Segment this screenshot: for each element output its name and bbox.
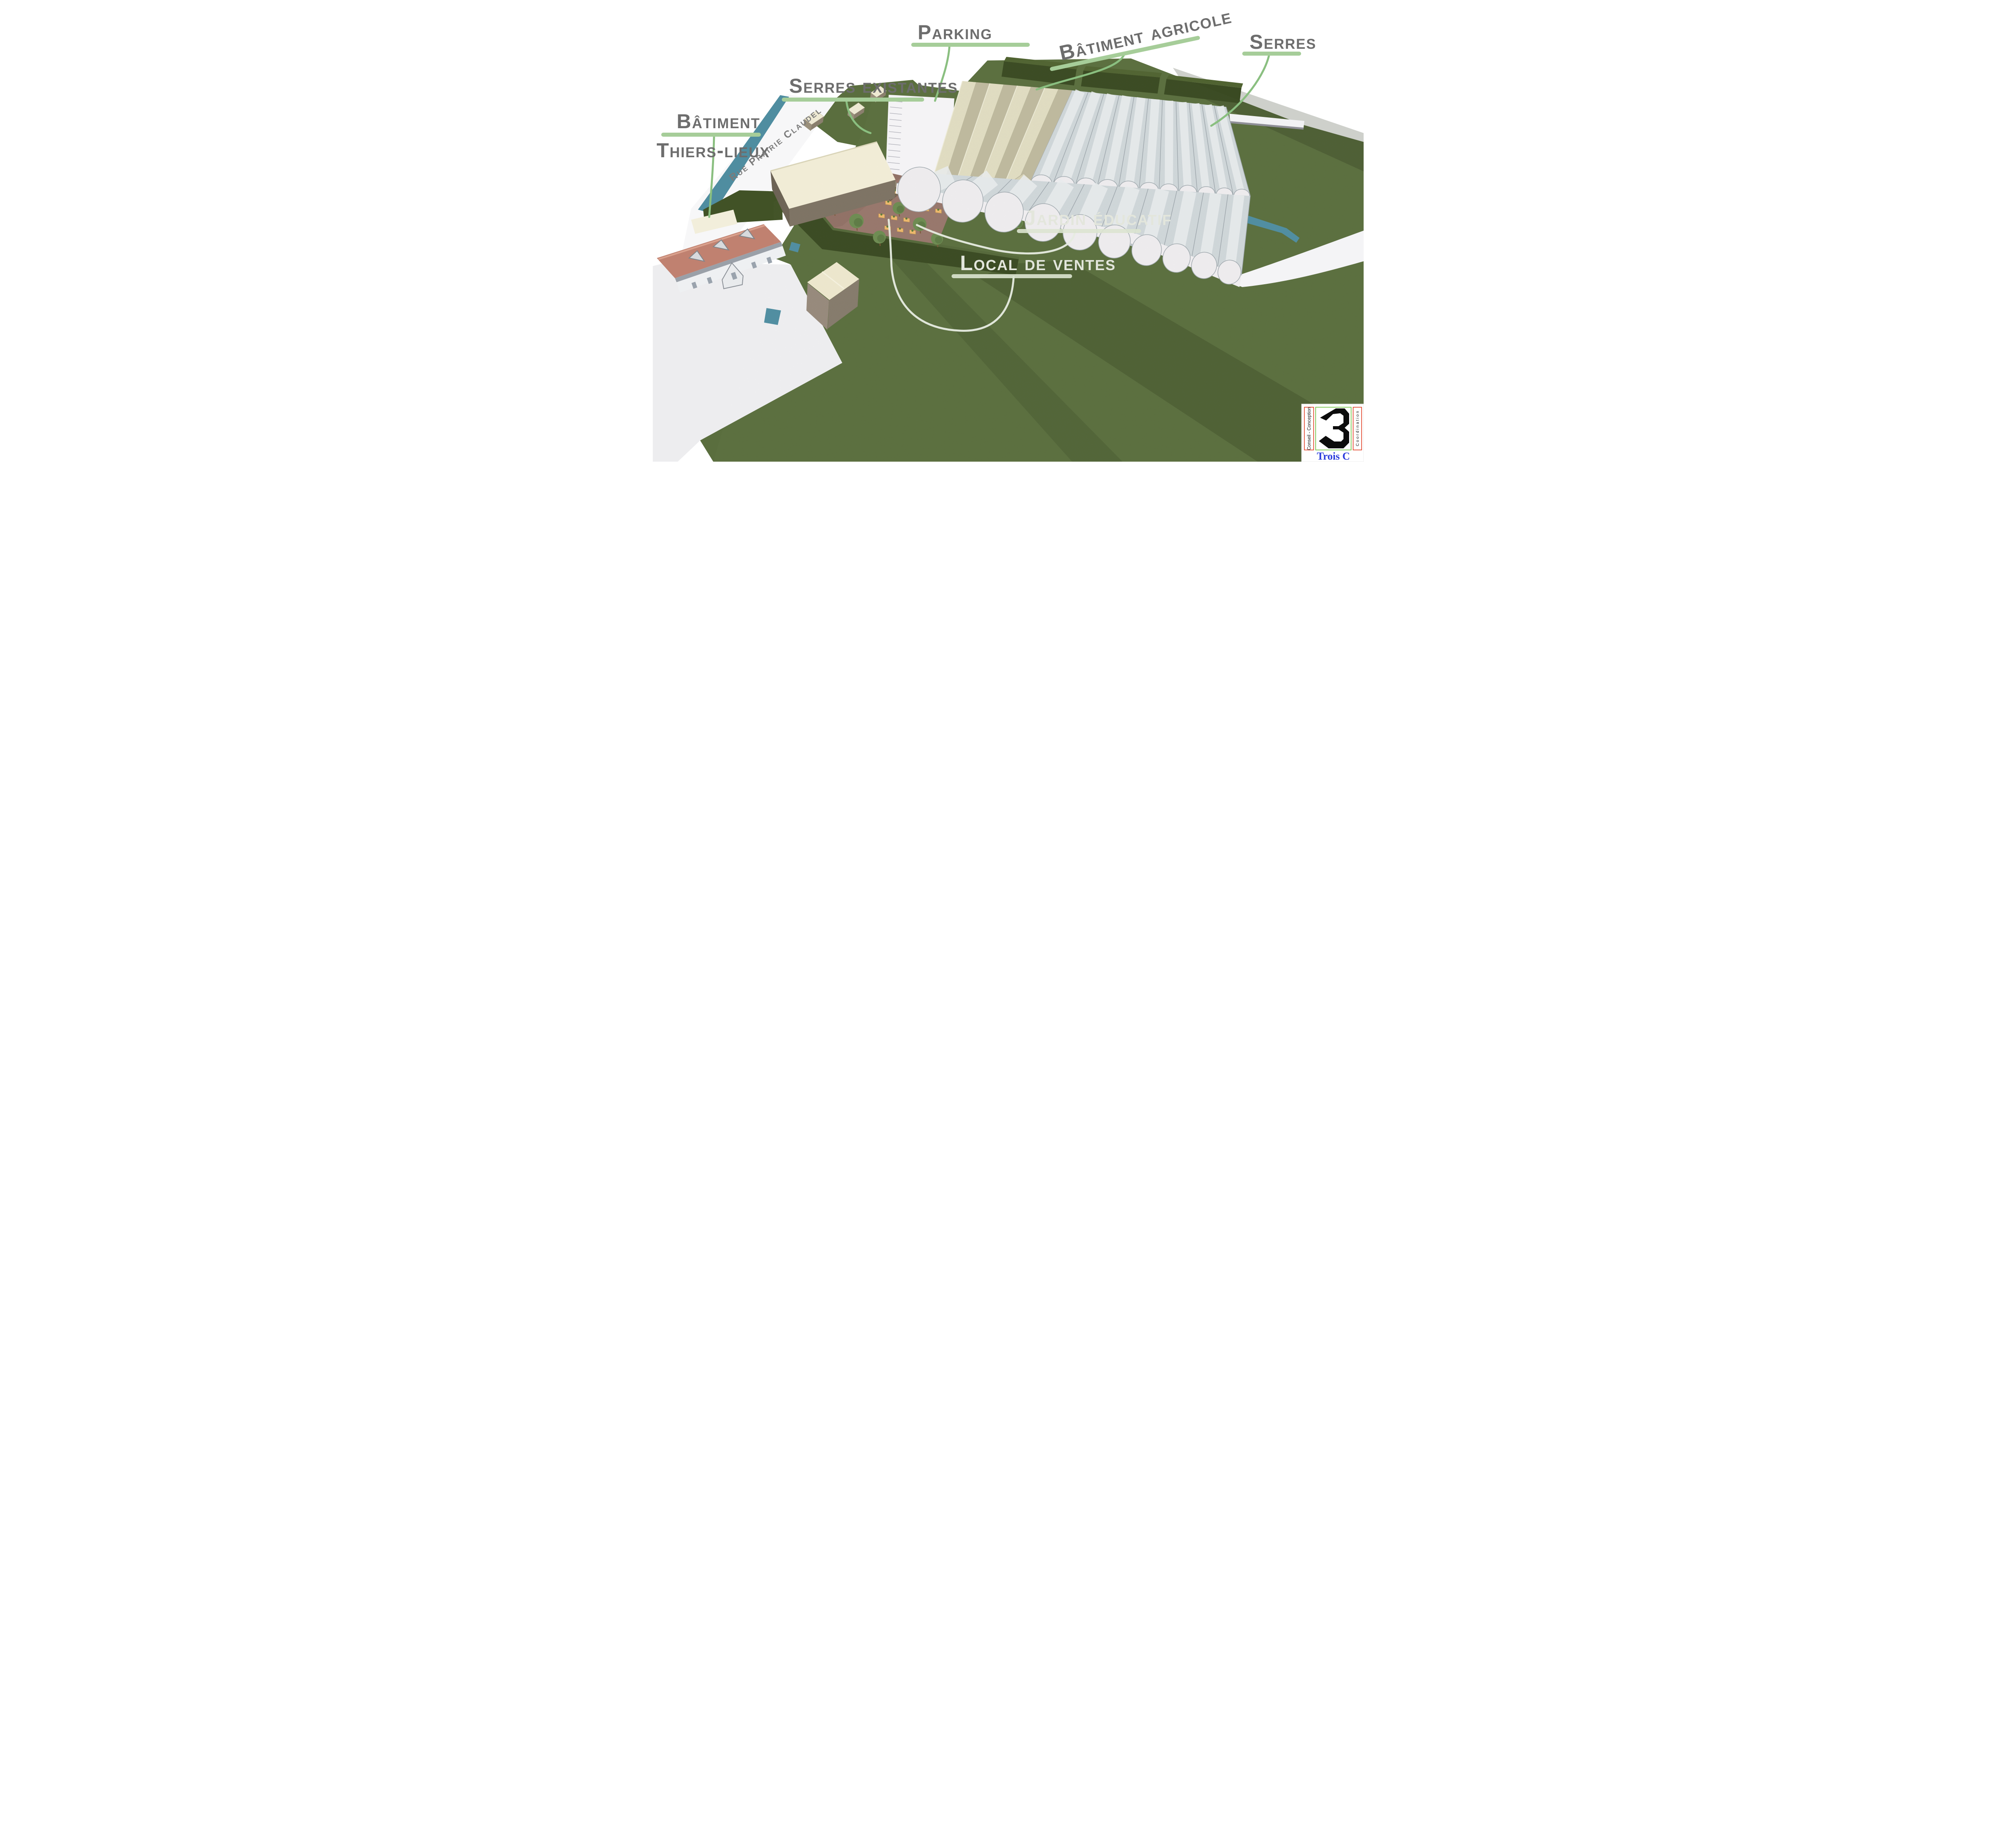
label-batiment-agricole-text: Bâtiment agricole: [1057, 4, 1234, 65]
logo-right-text: C o o r d i n a t i o n: [1356, 411, 1360, 446]
label-serres-existantes-text: Serres existantes: [789, 75, 958, 97]
label-serres-text: Serres: [1250, 31, 1316, 53]
scene-canvas: Parking Bâtiment agricole Serres Serres …: [653, 0, 1364, 462]
label-thiers-line1: Bâtiment: [677, 110, 760, 133]
label-local-de-ventes-text: Local de ventes: [960, 252, 1116, 275]
label-jardin-educatif-text: Jardin éducatif: [1024, 206, 1172, 230]
label-parking-text: Parking: [918, 21, 992, 44]
logo-left-text: Conseil - Conception: [1307, 407, 1312, 450]
logo-brand-text: Trois C: [1316, 450, 1350, 462]
logo-trois-c: Conseil - Conception C o o r d i n a t i…: [1302, 404, 1364, 462]
site-plan-rendering: Parking Bâtiment agricole Serres Serres …: [653, 0, 1364, 462]
